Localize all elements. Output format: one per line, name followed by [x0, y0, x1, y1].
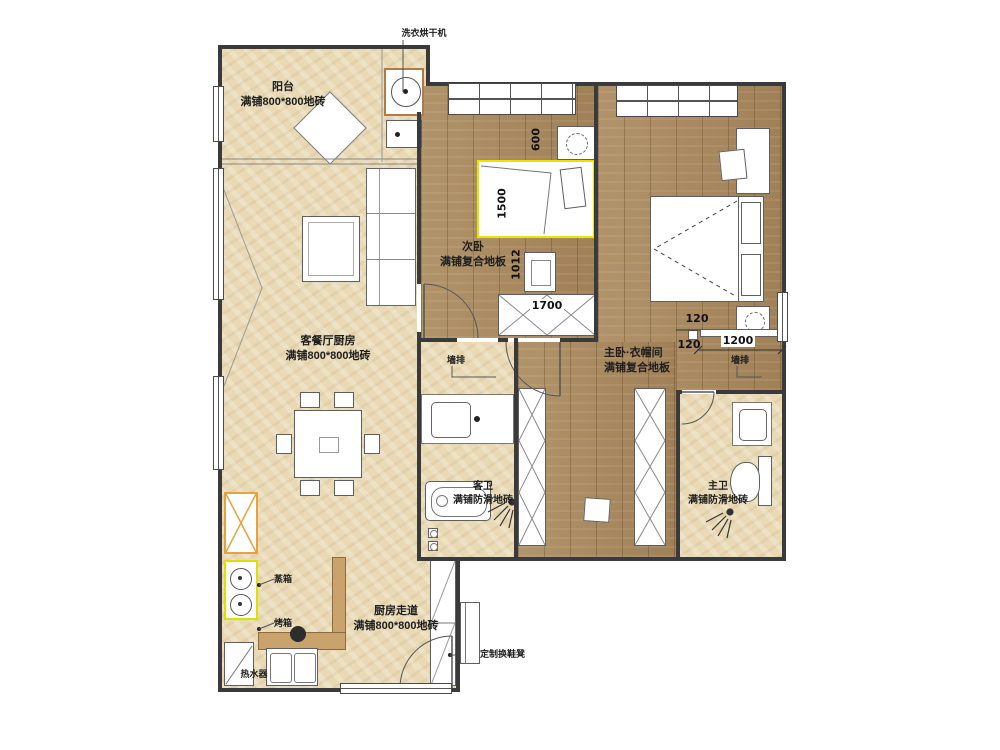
- dining-table: [294, 410, 362, 478]
- wall: [218, 45, 430, 49]
- sofa-backrest: [367, 169, 380, 305]
- label-washer-dryer: 洗衣烘干机: [382, 27, 466, 39]
- room-guest-bathroom: [421, 342, 514, 557]
- window: [616, 85, 738, 117]
- room-floor-spec: 满铺防滑地砖: [438, 494, 528, 508]
- entry-bench: [460, 602, 480, 664]
- kitchen-sink: [266, 648, 318, 686]
- window: [213, 168, 224, 300]
- closet-wardrobe-left: [518, 388, 546, 546]
- dining-chair: [300, 480, 320, 496]
- washer-drum: [391, 77, 421, 107]
- dim-120-top: 120: [682, 312, 712, 325]
- stove-burner: [230, 568, 252, 590]
- dining-chair: [276, 434, 292, 454]
- window: [213, 376, 224, 470]
- desk-chair: [531, 260, 551, 286]
- floor-drain: [428, 528, 438, 538]
- room-name: 阳台: [233, 80, 333, 95]
- dim-1700: 1700: [524, 299, 570, 312]
- kitchen-tall-cabinet: [224, 492, 258, 554]
- master-bath-vanity: [732, 402, 772, 446]
- room-floor-spec: 满铺防滑地砖: [674, 494, 762, 508]
- wall: [514, 338, 518, 561]
- label-living: 客餐厅厨房 满铺800*800地砖: [268, 334, 388, 364]
- stove-burner: [230, 594, 252, 616]
- label-master-bath: 主卫 满铺防滑地砖: [674, 480, 762, 507]
- washer-dryer-unit: [384, 68, 424, 116]
- closet-stool: [583, 497, 611, 523]
- closet-wardrobe-right: [634, 388, 666, 546]
- guest-bath-vanity: [421, 394, 514, 444]
- nightstand-lamp: [566, 133, 588, 155]
- window: [777, 292, 788, 342]
- wall: [560, 338, 598, 342]
- bay-window: [448, 83, 576, 115]
- wall: [426, 45, 430, 86]
- floor-plan: 阳台 满铺800*800地砖 客餐厅厨房 满铺800*800地砖 次卧 满铺复合…: [0, 0, 1000, 750]
- room-name: 客卫: [438, 480, 528, 494]
- bench-inset-line: [465, 603, 466, 663]
- floor-drain: [428, 541, 438, 551]
- dining-centerpiece: [319, 437, 339, 453]
- coffee-table-inset: [308, 222, 354, 276]
- wall: [498, 338, 508, 342]
- wall: [676, 390, 680, 561]
- vanity-basin: [739, 409, 767, 441]
- room-floor-spec: 满铺800*800地砖: [268, 349, 388, 364]
- wall: [417, 338, 457, 342]
- gas-stove: [224, 560, 258, 620]
- label-steam-oven: 蒸箱: [274, 573, 304, 585]
- room-floor-spec: 满铺800*800地砖: [338, 619, 454, 634]
- coffee-table: [302, 216, 360, 282]
- cabinet-knob: [395, 132, 400, 137]
- wall: [716, 390, 782, 394]
- cabinet-cross-hatch: [226, 494, 256, 552]
- wardrobe-cross-hatch: [635, 389, 665, 545]
- master-pillow: [741, 202, 761, 244]
- label-guest-bath: 客卫 满铺防滑地砖: [438, 480, 528, 507]
- sofa: [366, 168, 416, 306]
- room-name: 主卫: [674, 480, 762, 494]
- bed2-desk: [524, 252, 556, 292]
- wall: [417, 557, 786, 561]
- dining-chair: [334, 392, 354, 408]
- dim-1200: 1200: [714, 334, 762, 347]
- wardrobe-cross-hatch: [519, 389, 545, 545]
- master-pillow: [741, 254, 761, 296]
- label-wall-drain-left: 墙排: [442, 354, 470, 366]
- room-floor-spec: 满铺复合地板: [604, 361, 696, 376]
- label-wall-drain-right: 墙排: [726, 354, 754, 366]
- label-corridor: 厨房走道 满铺800*800地砖: [338, 604, 454, 634]
- room-name: 厨房走道: [338, 604, 454, 619]
- wall: [594, 82, 598, 341]
- bed2-nightstand: [557, 126, 595, 160]
- dining-chair: [300, 392, 320, 408]
- window: [340, 683, 452, 694]
- washer-drum-center: [403, 89, 408, 94]
- window: [213, 86, 224, 142]
- room-name: 客餐厅厨房: [268, 334, 388, 349]
- dining-chair: [334, 480, 354, 496]
- master-bed: [650, 196, 740, 302]
- dresser-mirror: [719, 149, 748, 182]
- dim-120-bottom: 120: [674, 338, 704, 351]
- dim-1500: 1500: [496, 182, 509, 226]
- label-oven: 烤箱: [274, 617, 304, 629]
- label-bench: 定制换鞋凳: [480, 648, 560, 660]
- dim-1012: 1012: [510, 243, 523, 287]
- room-floor-spec: 满铺800*800地砖: [233, 95, 333, 110]
- wall: [417, 332, 421, 561]
- bed2-pillow: [560, 167, 587, 209]
- dim-600: 600: [530, 120, 543, 160]
- vanity-basin: [431, 402, 471, 438]
- sink-basin: [294, 653, 316, 683]
- vanity-faucet: [474, 416, 480, 422]
- label-water-heater: 热水器: [232, 668, 276, 680]
- label-balcony: 阳台 满铺800*800地砖: [233, 80, 333, 110]
- dining-chair: [364, 434, 380, 454]
